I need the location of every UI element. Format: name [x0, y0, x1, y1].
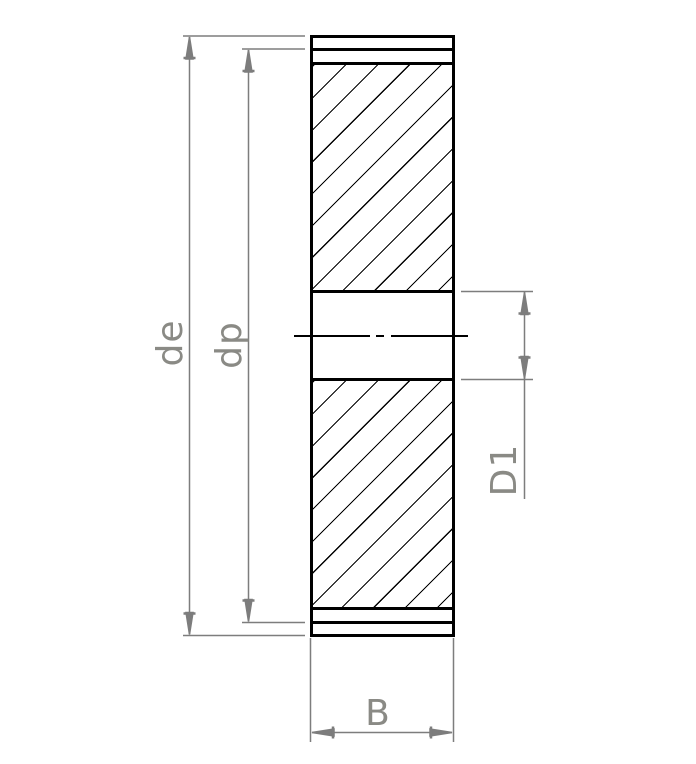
b-arrow-left — [312, 729, 334, 736]
de-label: de — [153, 320, 189, 367]
d1-arrow-down — [521, 357, 528, 379]
root-line-bottom — [311, 607, 454, 610]
d1-label: D1 — [487, 444, 523, 497]
centerline-segment — [391, 335, 468, 337]
b-label: B — [365, 696, 391, 732]
pitch-line-bottom — [311, 621, 454, 624]
centerline-dash — [376, 335, 384, 337]
drawing-canvas: de dp D1 B — [0, 0, 696, 764]
d1-arrow-up — [521, 293, 528, 315]
centerline-segment — [294, 335, 370, 337]
pitch-line-top — [311, 48, 454, 51]
dp-arrow-up — [245, 50, 252, 72]
b-arrow-right — [430, 729, 452, 736]
hatch-upper-section — [313, 65, 453, 291]
dp-label: dp — [212, 321, 248, 369]
de-arrow-down — [186, 613, 193, 635]
hatch-lower-section — [313, 381, 453, 607]
de-arrow-up — [186, 37, 193, 59]
bore-line-top — [311, 290, 454, 293]
dp-arrow-down — [245, 600, 252, 622]
